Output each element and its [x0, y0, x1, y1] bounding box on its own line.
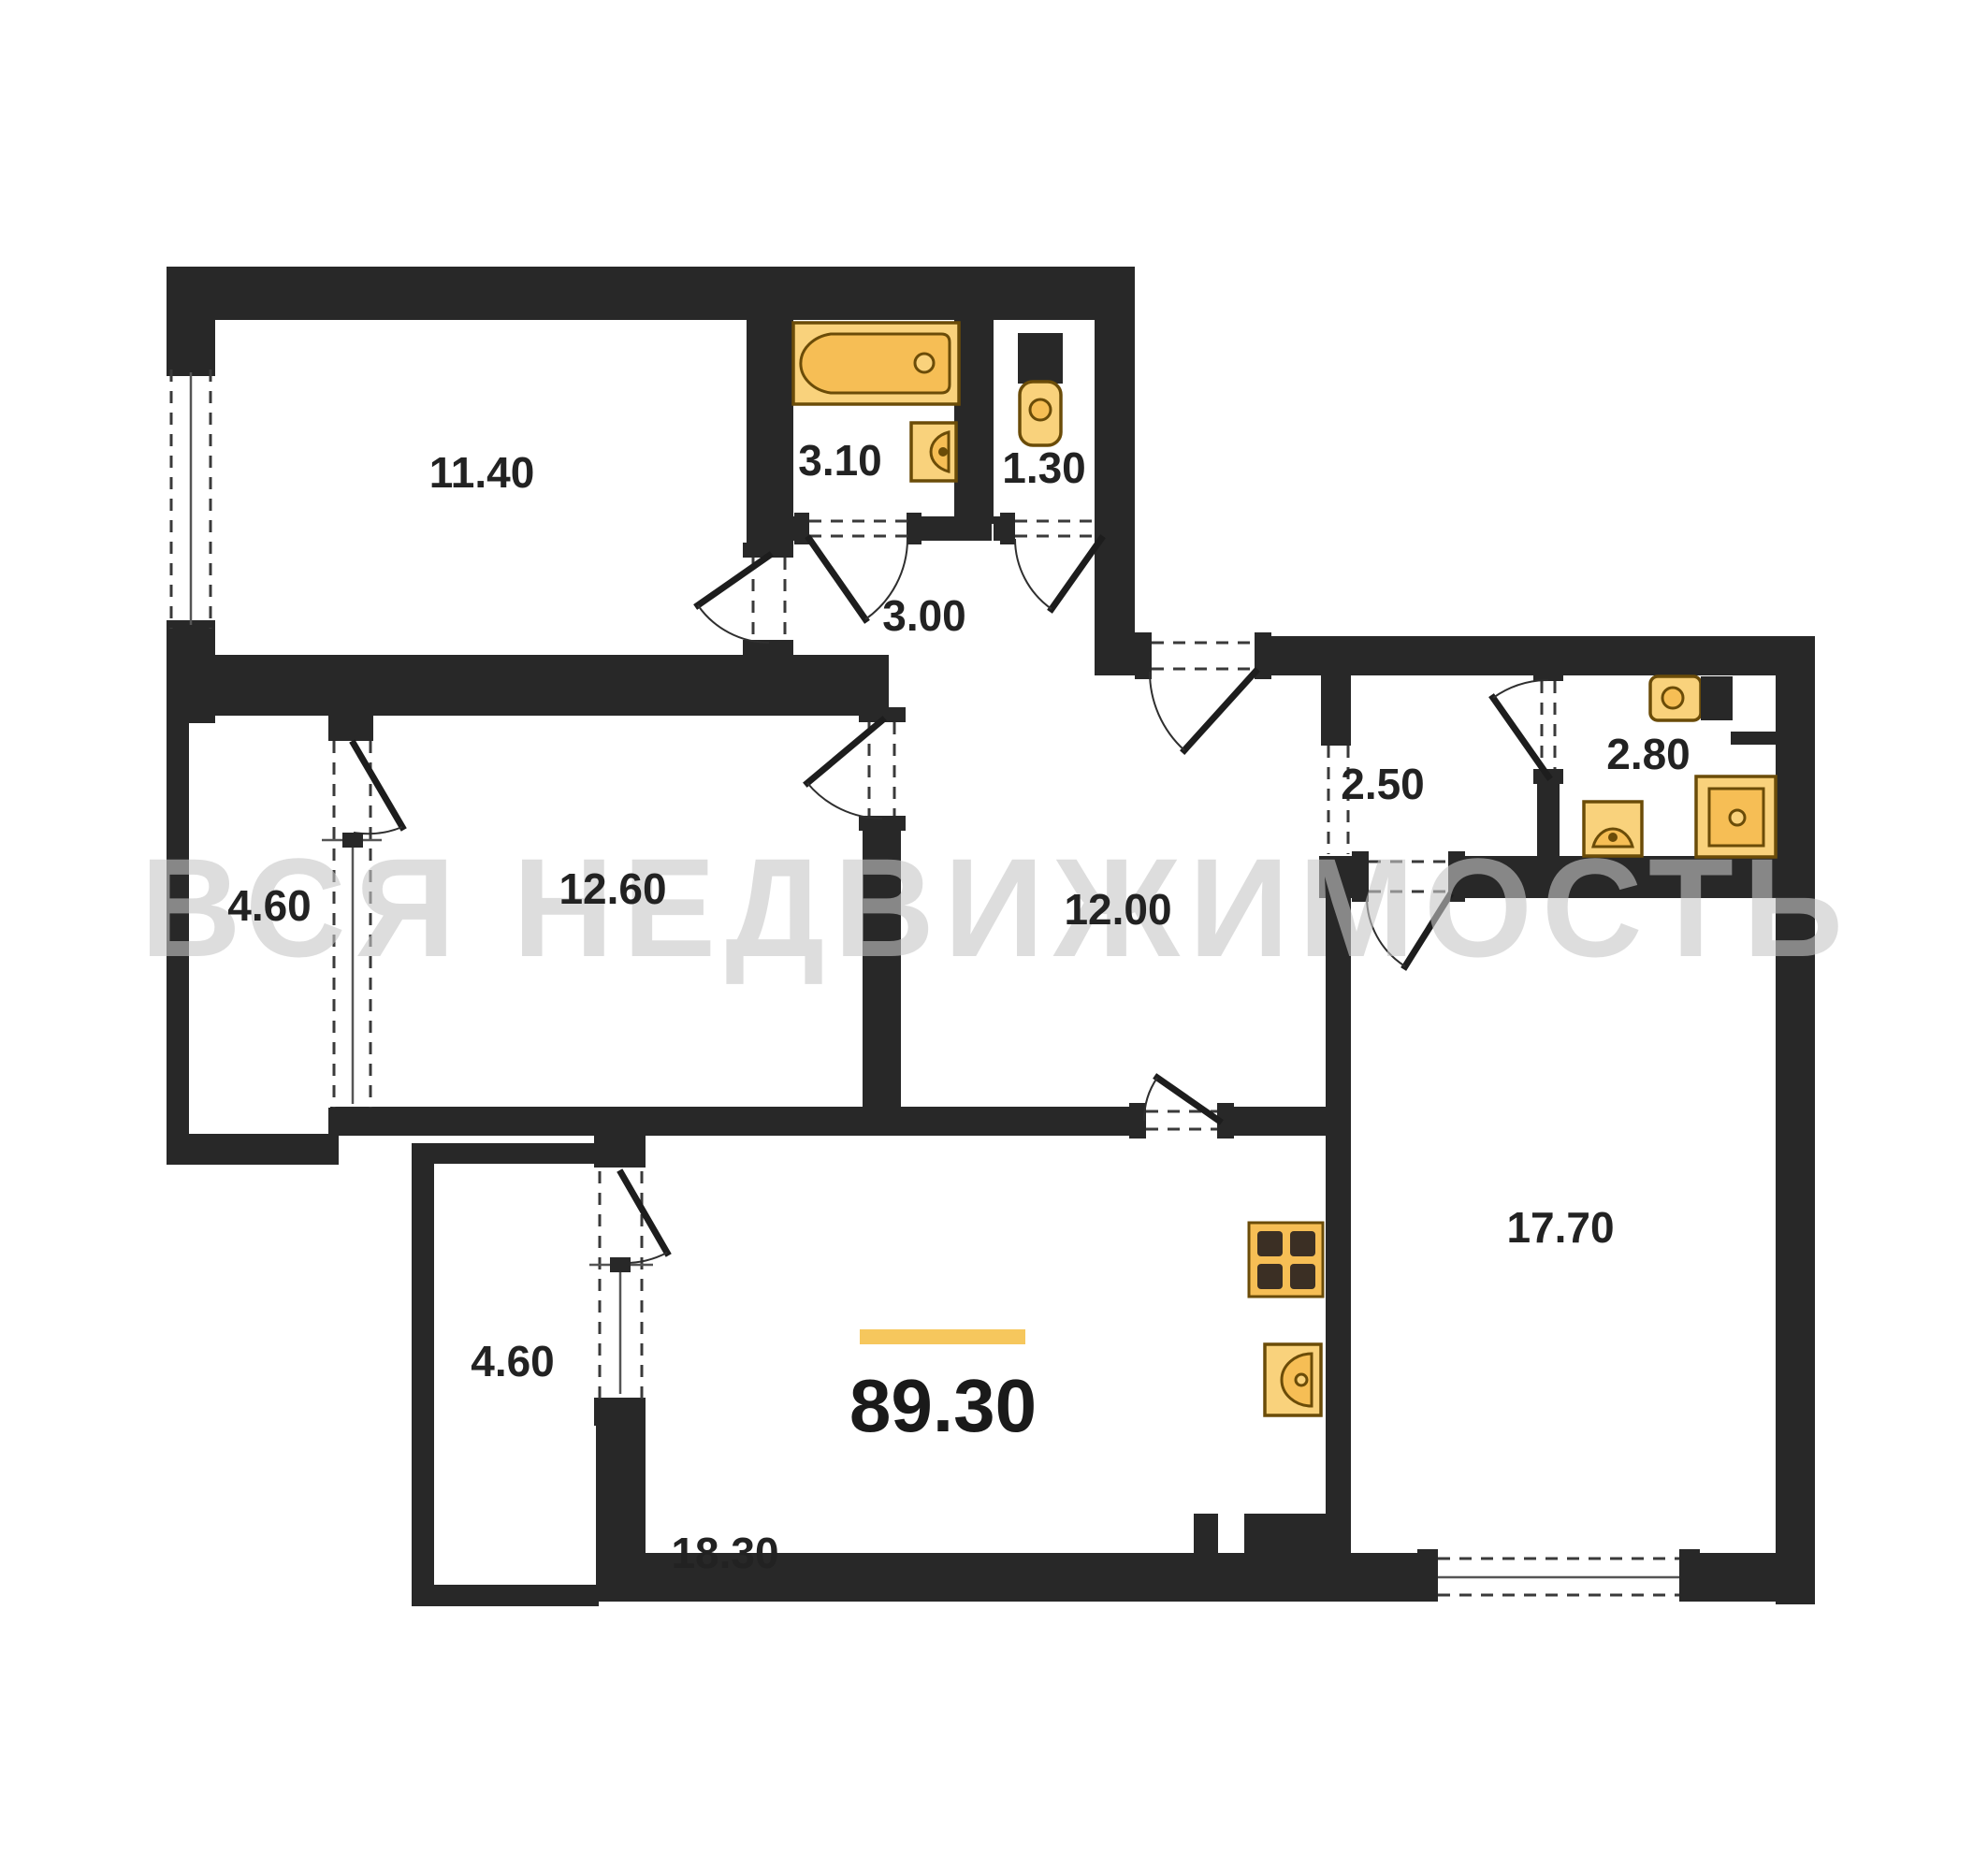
watermark-text: ВСЯ НЕДВИЖИМОСТЬ	[140, 829, 1852, 986]
toilet-shower-room-icon	[1650, 676, 1733, 720]
room-area-label-loggia-lower: 4.60	[471, 1337, 555, 1385]
room-area-label-bathroom: 3.10	[798, 436, 882, 485]
room-area-label-shower-room: 2.80	[1606, 730, 1691, 778]
room-area-label-kitchen-living: 18.30	[671, 1529, 778, 1577]
room-area-label-living-room: 17.70	[1506, 1203, 1614, 1252]
room-area-label-wc: 1.30	[1002, 443, 1086, 492]
room-area-label-bedroom: 11.40	[429, 448, 535, 497]
room-area-label-entry-hall: 2.50	[1341, 760, 1425, 808]
room-area-label-hall: 3.00	[882, 591, 966, 640]
room-area-label-corridor: 12.00	[1064, 885, 1171, 934]
sink-bathroom-icon	[911, 423, 956, 481]
total-area-accent-bar	[860, 1329, 1025, 1344]
total-area-value: 89.30	[849, 1364, 1037, 1447]
bathtub-icon	[793, 323, 959, 404]
floor-plan: ВСЯ НЕДВИЖИМОСТЬ 11.40 3.10 1.30 3.00 4.…	[0, 0, 1988, 1871]
sink-kitchen-icon	[1265, 1344, 1321, 1415]
room-area-label-room-12-60: 12.60	[559, 864, 666, 913]
room-area-label-loggia-upper: 4.60	[227, 881, 312, 930]
toilet-wc-icon	[1018, 333, 1063, 445]
stove-icon	[1249, 1223, 1323, 1297]
